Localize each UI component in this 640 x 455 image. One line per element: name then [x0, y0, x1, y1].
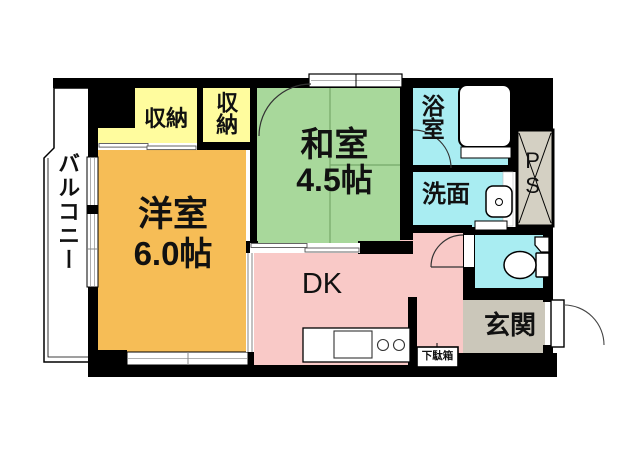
- entrance-door-arc: [564, 305, 604, 345]
- toilet-bowl: [504, 252, 536, 279]
- shoe-cabinet-box: [417, 343, 458, 367]
- bathtub: [459, 85, 511, 158]
- western-room-floor: [98, 150, 246, 363]
- burner: [378, 340, 389, 351]
- entrance-door: [551, 300, 604, 347]
- toilet-tank: [536, 253, 549, 277]
- storage2-floor: [203, 88, 250, 142]
- burner: [394, 340, 405, 351]
- floor-plan-drawing: [0, 0, 640, 455]
- kitchen-sink: [334, 331, 372, 358]
- left-window: [87, 157, 98, 287]
- kitchen-counter: [303, 328, 410, 362]
- entrance-floor: [463, 300, 545, 353]
- floor-plan: バルコニー 収納 収納 和室 4.5帖 洋室 6.0帖 DK 浴室 洗面 PS …: [0, 0, 640, 455]
- pipe-space-box: [517, 130, 553, 226]
